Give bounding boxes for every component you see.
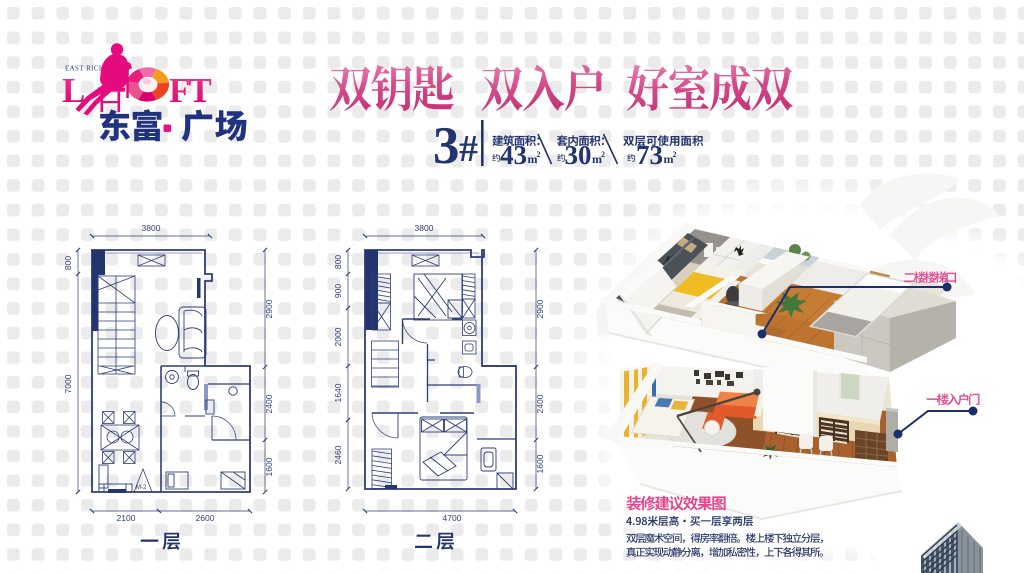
svg-text:2000: 2000 <box>333 327 343 346</box>
svg-text:43: 43 <box>500 140 527 170</box>
svg-text:3: 3 <box>433 117 460 175</box>
svg-text:2: 2 <box>673 150 677 159</box>
svg-text:73: 73 <box>636 140 663 170</box>
svg-text:2: 2 <box>537 150 541 159</box>
svg-text:900: 900 <box>333 284 343 298</box>
svg-text:2600: 2600 <box>196 513 215 523</box>
svg-text:2460: 2460 <box>333 445 343 464</box>
svg-text:800: 800 <box>333 255 343 269</box>
svg-text:#: # <box>459 128 478 170</box>
svg-text:800: 800 <box>63 256 73 270</box>
svg-text:7000: 7000 <box>63 374 73 393</box>
svg-text:1600: 1600 <box>264 457 274 476</box>
svg-text:4700: 4700 <box>443 513 462 523</box>
svg-text:2900: 2900 <box>535 299 545 318</box>
svg-text:2: 2 <box>601 150 605 159</box>
svg-text:2400: 2400 <box>535 394 545 413</box>
svg-text:30: 30 <box>565 140 592 170</box>
svg-text:3800: 3800 <box>415 223 434 233</box>
svg-text:1640: 1640 <box>333 383 343 402</box>
svg-text:2900: 2900 <box>264 299 274 318</box>
svg-text:2100: 2100 <box>117 513 136 523</box>
svg-text:2400: 2400 <box>264 394 274 413</box>
svg-text:FT: FT <box>169 71 211 110</box>
svg-text:1600: 1600 <box>535 454 545 473</box>
svg-text:M-2: M-2 <box>136 485 147 491</box>
svg-text:3800: 3800 <box>142 223 161 233</box>
